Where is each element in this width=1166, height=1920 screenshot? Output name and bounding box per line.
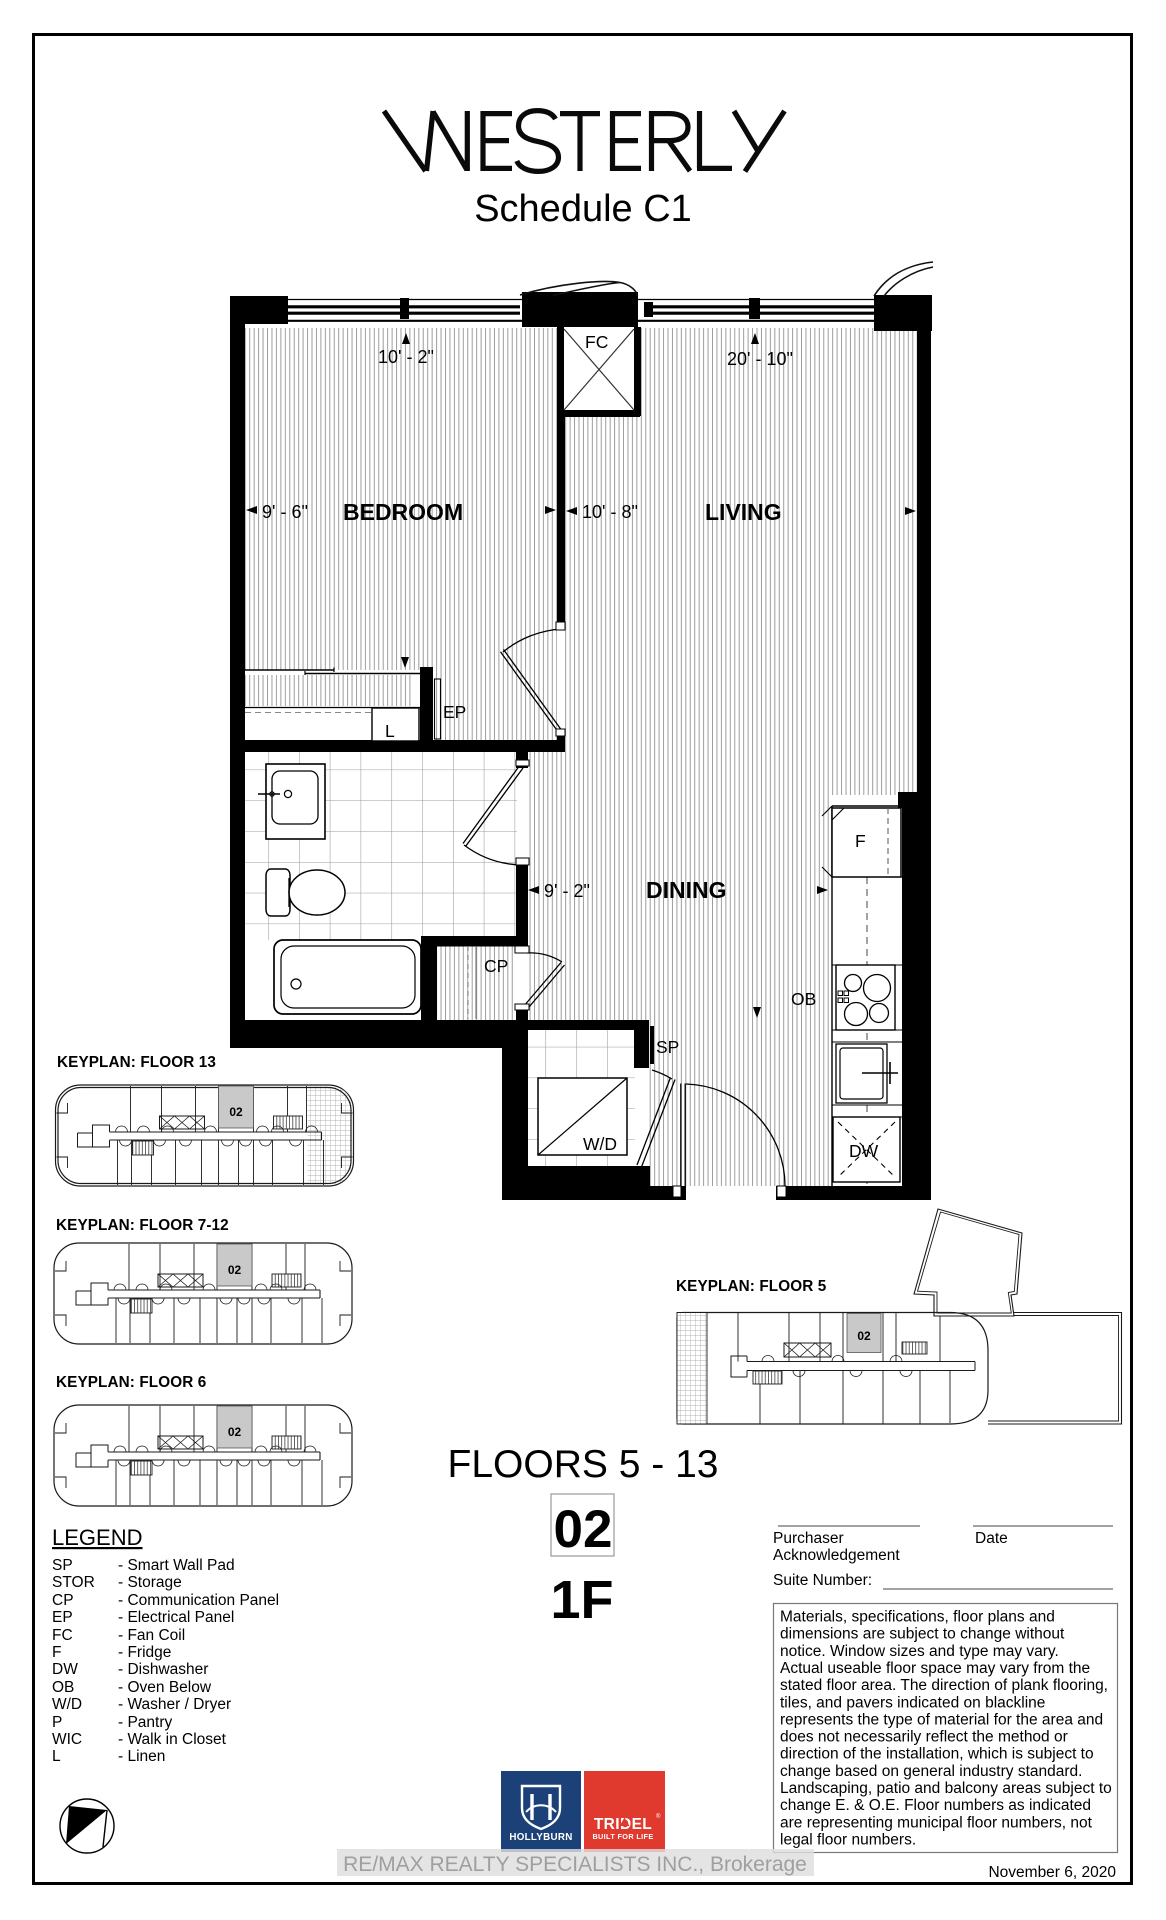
svg-text:are representing municipal flo: are representing municipal floor numbers… [780,1814,1093,1831]
svg-text:tiles, and pavers indicated on: tiles, and pavers indicated on blackline [780,1694,1045,1711]
svg-text:dimensions are subject to chan: dimensions are subject to change without [780,1626,1065,1643]
svg-text:- Fridge: - Fridge [118,1644,171,1661]
svg-text:10' - 8": 10' - 8" [582,502,638,522]
svg-text:EP: EP [443,702,466,722]
svg-text:- Pantry: - Pantry [118,1714,173,1731]
svg-text:CP: CP [52,1592,74,1609]
svg-text:SP: SP [656,1037,679,1057]
svg-text:does not necessarily reflect t: does not necessarily reflect the method … [780,1729,1068,1746]
svg-text:HOLLYBURN: HOLLYBURN [509,1832,572,1843]
svg-text:®: ® [656,1813,661,1820]
svg-text:- Smart Wall Pad: - Smart Wall Pad [118,1557,235,1574]
svg-text:Purchaser: Purchaser [773,1530,844,1547]
svg-text:EP: EP [52,1609,73,1626]
svg-text:KEYPLAN: FLOOR 7-12: KEYPLAN: FLOOR 7-12 [56,1217,229,1234]
svg-text:- Storage: - Storage [118,1574,182,1591]
svg-text:Actual useable floor space may: Actual useable floor space may vary from… [780,1660,1090,1677]
svg-text:stated floor area. The directi: stated floor area. The direction of plan… [780,1677,1108,1694]
svg-text:KEYPLAN: FLOOR 6: KEYPLAN: FLOOR 6 [56,1374,206,1391]
svg-text:9' - 6": 9' - 6" [262,502,308,522]
svg-text:BEDROOM: BEDROOM [343,499,463,525]
svg-text:F: F [52,1644,61,1661]
svg-text:FC: FC [585,332,608,352]
svg-text:W/D: W/D [52,1696,82,1713]
svg-text:legal floor numbers.: legal floor numbers. [780,1832,916,1849]
svg-text:OB: OB [52,1679,74,1696]
svg-text:L: L [385,721,395,741]
svg-text:direction of the installation,: direction of the installation, which is … [780,1746,1094,1763]
svg-text:Landscaping, patio and balcony: Landscaping, patio and balcony areas sub… [780,1780,1112,1797]
svg-text:OB: OB [791,989,816,1009]
svg-text:Schedule C1: Schedule C1 [474,188,692,230]
svg-text:SP: SP [52,1557,73,1574]
svg-text:KEYPLAN: FLOOR 5: KEYPLAN: FLOOR 5 [676,1278,827,1295]
svg-text:FC: FC [52,1627,73,1644]
svg-text:DW: DW [849,1141,879,1161]
svg-text:20' - 10": 20' - 10" [727,349,793,369]
svg-text:DINING: DINING [646,877,727,903]
svg-text:9' - 2": 9' - 2" [544,881,590,901]
svg-text:P: P [52,1714,62,1731]
svg-text:02: 02 [857,1329,871,1343]
svg-text:WIC: WIC [52,1731,82,1748]
svg-text:- Washer / Dryer: - Washer / Dryer [118,1696,231,1713]
svg-text:1F: 1F [550,1570,613,1630]
svg-text:BUILT FOR LIFE: BUILT FOR LIFE [592,1832,653,1841]
svg-text:KEYPLAN: FLOOR 13: KEYPLAN: FLOOR 13 [57,1054,216,1071]
svg-text:RE/MAX REALTY SPECIALISTS INC.: RE/MAX REALTY SPECIALISTS INC., Brokerag… [343,1853,807,1876]
svg-text:change E. & O.E. Floor numbers: change E. & O.E. Floor numbers as indica… [780,1797,1091,1814]
svg-text:- Linen: - Linen [118,1748,165,1765]
svg-text:Acknowledgement: Acknowledgement [773,1547,900,1564]
svg-text:02: 02 [228,1425,242,1439]
svg-text:CP: CP [484,956,508,976]
svg-text:notice. Window sizes and type: notice. Window sizes and type may vary. [780,1643,1059,1660]
svg-text:STOR: STOR [52,1574,95,1591]
svg-text:02: 02 [229,1105,243,1119]
svg-text:change based on general indust: change based on general industry standar… [780,1763,1082,1780]
svg-text:Date: Date [975,1530,1008,1547]
svg-text:Suite Number:: Suite Number: [773,1572,872,1589]
svg-text:LEGEND: LEGEND [52,1525,142,1550]
svg-text:- Communication Panel: - Communication Panel [118,1592,279,1609]
svg-text:- Electrical Panel: - Electrical Panel [118,1609,234,1626]
svg-text:02: 02 [228,1263,242,1277]
svg-text:02: 02 [554,1500,613,1559]
svg-text:LIVING: LIVING [705,499,782,525]
svg-text:November 6, 2020: November 6, 2020 [988,1864,1116,1881]
svg-text:L: L [52,1748,61,1765]
svg-text:Materials, specifications, flo: Materials, specifications, floor plans a… [780,1609,1055,1626]
svg-text:- Oven Below: - Oven Below [118,1679,212,1696]
svg-text:- Walk in Closet: - Walk in Closet [118,1731,227,1748]
svg-text:- Dishwasher: - Dishwasher [118,1661,208,1678]
svg-text:W/D: W/D [583,1134,617,1154]
svg-text:10' - 2": 10' - 2" [378,347,434,367]
svg-text:F: F [855,831,866,851]
svg-text:DW: DW [52,1661,78,1678]
svg-text:- Fan Coil: - Fan Coil [118,1627,185,1644]
svg-text:FLOORS 5 - 13: FLOORS 5 - 13 [448,1443,719,1486]
svg-text:represents the type of materia: represents the type of material for the … [780,1711,1103,1728]
